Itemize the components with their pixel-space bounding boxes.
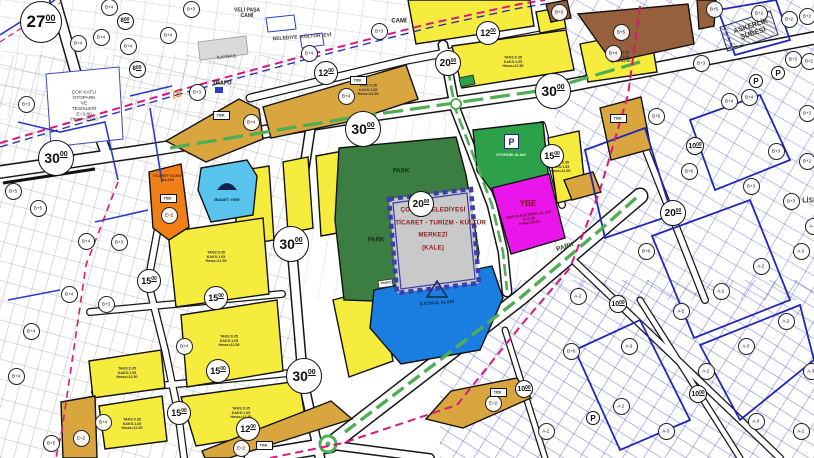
height-circle-label: B+3 <box>555 10 563 15</box>
road-width-circle: 2000 <box>660 200 686 226</box>
height-circle: B+3 <box>111 234 128 251</box>
height-circle: B+2 <box>799 153 814 170</box>
height-circle-label: A-2 <box>718 289 725 294</box>
road-width-decimals: 00 <box>367 122 375 129</box>
height-circle: B+4 <box>605 45 622 62</box>
height-circle: A-2 <box>778 313 795 330</box>
height-circle-label: B+2 <box>755 11 763 16</box>
height-circle-label: E=2 <box>77 436 85 441</box>
road-width-decimals: 00 <box>424 199 430 205</box>
height-circle-label: A-3 <box>808 369 814 374</box>
parking-circle: P <box>586 411 600 425</box>
otopark-p-letter: P <box>508 137 514 147</box>
road-width-decimals: 00 <box>220 366 226 372</box>
height-circle-label: B+3 <box>115 240 123 245</box>
height-circle-label: B+3 <box>772 149 780 154</box>
height-circle-label: B+3 <box>789 57 797 62</box>
road-width-decimals: 00 <box>124 17 130 23</box>
height-circle: A-2 <box>753 258 770 275</box>
height-circle: E=2 <box>161 207 178 224</box>
road-width-circle: 1000 <box>609 295 627 313</box>
height-circle: B+4 <box>70 35 87 52</box>
height-circle: B+4 <box>301 45 318 62</box>
height-circle-label: A-2 <box>575 294 582 299</box>
road-width-circle: 3000 <box>286 358 322 394</box>
height-circle-label: A-2 <box>798 429 805 434</box>
height-circle: A-2 <box>793 423 810 440</box>
road-width-decimals: 00 <box>45 13 55 23</box>
height-circle-label: A-3 <box>743 344 750 349</box>
road-width-value: 10 <box>517 386 525 393</box>
road-width-circle: 3000 <box>535 73 571 109</box>
height-circle: B+6 <box>681 163 698 180</box>
road-width-value: 15 <box>171 408 181 418</box>
height-circle: B+6 <box>563 343 580 360</box>
trafo-label-text: TRAFO <box>213 80 232 86</box>
road-width-decimals: 00 <box>181 408 187 414</box>
height-circle: A-2 <box>613 398 630 415</box>
height-circle-label: B+5 <box>47 441 55 446</box>
height-circle: B+4 <box>176 338 193 355</box>
ticaret-konut-label-text: TİCARET KONUT ALANI <box>152 174 183 183</box>
park-label-text: PARK <box>393 168 410 175</box>
tick-box-label: TİCK <box>354 78 362 82</box>
height-circle: A-2 <box>805 218 814 235</box>
height-circle-label: A-2 <box>810 224 814 229</box>
road-width-decimals: 00 <box>295 237 303 244</box>
road-width-decimals: 00 <box>619 300 625 306</box>
belediye-kultur-evi-label-text: BELEDİYE KÜLTÜR EVİ <box>272 32 331 42</box>
parking-circle: P <box>771 66 785 80</box>
road-width-value: 12 <box>240 424 250 434</box>
kale-title: ÇORUM BELEDİYESİ TİCARET - TURİZM - KÜLT… <box>373 204 493 254</box>
height-circle: A-2 <box>570 288 587 305</box>
height-circle-label: B+4 <box>65 292 73 297</box>
height-circle: A-2 <box>673 303 690 320</box>
height-circle-label: B+4 <box>74 41 82 46</box>
road-width-decimals: 00 <box>250 424 256 430</box>
kale-line: (KALE) <box>395 244 471 252</box>
block-note-text: TAKS:0.35 KAKS:1.05 Hmax=12.50 <box>122 418 143 430</box>
height-circle: B+5 <box>613 24 630 41</box>
height-circle: B+4 <box>741 89 758 106</box>
height-circle-label: A-2 <box>703 369 710 374</box>
road-width-decimals: 00 <box>328 68 334 74</box>
height-circle-label: B+4 <box>82 239 90 244</box>
height-circle: B+2 <box>781 11 798 28</box>
block-note-text: TAKS:0.35 KAKS:1.05 Hmax=12.50 <box>503 56 524 68</box>
road-width-decimals: 00 <box>218 293 224 299</box>
tick-box: TİCK <box>256 441 273 450</box>
park-label-text: PARK <box>555 241 574 253</box>
height-circle-label: B+4 <box>99 420 107 425</box>
road-width-value: 20 <box>413 199 424 210</box>
height-circle: B+4 <box>160 27 177 44</box>
height-circle: B+4 <box>61 286 78 303</box>
height-circle: A-2 <box>713 283 730 300</box>
road-width-value: 15 <box>141 276 151 286</box>
road-width-circle: 1200 <box>476 21 500 45</box>
road-width-value: 27 <box>27 12 46 32</box>
road-width-circle: 1200 <box>314 61 338 85</box>
height-circle: B+4 <box>95 414 112 431</box>
s-boundary-label-text: (S <box>173 90 182 100</box>
height-circle-label: B+2 <box>803 159 811 164</box>
road-width-circle: 1000 <box>515 380 533 398</box>
block-note-text: TAKS:0.35 KAKS:1.05 Hmax=12.50 <box>117 367 138 379</box>
road-width-decimals: 00 <box>699 390 705 396</box>
height-circle: B+3 <box>783 193 800 210</box>
tick-box-label: TİCK <box>614 116 622 120</box>
height-circle-label: B+4 <box>97 35 105 40</box>
road-width-circle: 1200 <box>236 417 260 441</box>
otopark-alani-label-text: OTOPARK ALANI <box>496 153 526 157</box>
road-width-value: 15 <box>544 151 554 161</box>
height-circle: A-2 <box>538 423 555 440</box>
height-circle-label: B+3 <box>747 184 755 189</box>
height-circle-label: A-2 <box>678 309 685 314</box>
height-circle-label: B+4 <box>305 51 313 56</box>
height-circle-label: A-2 <box>783 319 790 324</box>
height-circle: B+5 <box>30 200 47 217</box>
road-width-decimals: 00 <box>136 65 142 71</box>
road-width-value: 12 <box>480 28 490 38</box>
height-circle-label: B+6 <box>642 249 650 254</box>
height-circle: B+5 <box>5 183 22 200</box>
height-circle: B+3 <box>799 105 814 122</box>
veli-pasa-cami-label-text: VELİ PAŞA CAMİ <box>234 7 260 18</box>
block-note: TAKS:0.35 KAKS:1.05 Hmax=12.50 <box>229 341 287 376</box>
road-width-value: 30 <box>541 83 557 99</box>
height-circle-label: B+6 <box>567 349 575 354</box>
road-width-circle: 3000 <box>273 226 309 262</box>
height-circle: B+3 <box>743 178 760 195</box>
height-circle: B+3 <box>98 296 115 313</box>
height-circle-label: A-2 <box>618 404 625 409</box>
height-circle-label: B+3 <box>187 7 195 12</box>
road-width-value: 30 <box>351 121 367 137</box>
height-circle-label: B+4 <box>342 94 350 99</box>
height-circle-label: B+3 <box>22 102 30 107</box>
kale-line: MERKEZİ <box>395 231 471 239</box>
road-width-circle: 1000 <box>689 385 707 403</box>
cok-katli-otopark-label-text: ÇOK KATLI OTOPARK VE TESİSLERİ E=3.80 Hm… <box>70 90 97 122</box>
height-circle: B+4 <box>101 0 118 16</box>
parking-circle: P <box>749 74 763 88</box>
otopark-p-sign: P <box>504 134 519 149</box>
height-circle: A-3 <box>738 338 755 355</box>
height-circle: A-3 <box>793 243 810 260</box>
cami-label-text: CAMİ <box>391 18 406 25</box>
height-circle: B+3 <box>189 84 206 101</box>
ybe-label-text: YBE <box>520 200 536 209</box>
road-width-circle: 1500 <box>204 286 228 310</box>
height-circle: B+6 <box>638 243 655 260</box>
block-note: TAKS:0.35 KAKS:1.05 Hmax=12.50 <box>620 57 678 92</box>
lise-label-text: LİSE <box>802 197 814 205</box>
height-circle: B+5 <box>706 1 723 18</box>
height-circle-label: B+4 <box>745 95 753 100</box>
ilkokul-alani-label-text: İLKOKUL ALANI <box>419 299 454 306</box>
road-width-circle: 3000 <box>38 140 74 176</box>
road-width-circle: 3000 <box>345 111 381 147</box>
height-circle-label: A-3 <box>663 429 670 434</box>
height-circle-label: B+4 <box>105 5 113 10</box>
road-width-value: 10 <box>688 143 696 150</box>
road-width-value: 30 <box>292 368 308 384</box>
road-width-decimals: 00 <box>676 208 682 214</box>
height-circle-label: B+2 <box>785 17 793 22</box>
tick-box: TİCK <box>350 76 367 85</box>
height-circle: B+4 <box>721 93 738 110</box>
height-circle-label: A-3 <box>798 249 805 254</box>
road-width-decimals: 00 <box>525 385 531 391</box>
tick-box-label: TİCK <box>164 196 172 200</box>
height-circle-label: B+3 <box>697 61 705 66</box>
tick-box: TİCK <box>610 114 627 123</box>
height-circle: B+4 <box>243 114 260 131</box>
road-width-circle: 1500 <box>167 401 191 425</box>
height-circle-label: B+5 <box>34 206 42 211</box>
height-circle: B+3 <box>768 143 785 160</box>
height-circle: B+2 <box>801 53 814 70</box>
trafo2-label-text: TRAFO <box>380 281 391 286</box>
height-circle-label: B+4 <box>27 329 35 334</box>
road-width-circle: 800 <box>129 61 146 78</box>
block-note-text: TAKS:0.35 KAKS:1.05 Hmax=12.50 <box>358 84 379 96</box>
height-circle-label: B+3 <box>102 302 110 307</box>
road-width-decimals: 00 <box>554 151 560 157</box>
road-width-circle: 2000 <box>435 50 461 76</box>
ybe-detail-label-text: SOSYO-KÜLTÜREL ALANI E=1.00 Hmax=15.50 <box>506 210 552 228</box>
height-circle-label: B+4 <box>609 51 617 56</box>
road-width-value: 20 <box>665 208 676 219</box>
road-width-decimals: 00 <box>490 28 496 34</box>
height-circle: B+3 <box>785 51 802 68</box>
tick-box: TİCK <box>213 111 230 120</box>
height-circle-label: E=2 <box>489 401 497 406</box>
height-circle: E=2 <box>485 395 502 412</box>
height-circle-label: B+5 <box>9 189 17 194</box>
road-width-value: 15 <box>208 293 218 303</box>
height-circle-label: B+5 <box>617 30 625 35</box>
height-circle-label: B+3 <box>193 90 201 95</box>
height-circle: B+3 <box>18 96 35 113</box>
tick-box-label: TİCK <box>217 113 225 117</box>
height-circle-label: B+2 <box>805 59 813 64</box>
road-width-value: 12 <box>318 68 328 78</box>
kale-line: TİCARET - TURİZM - KÜLTÜR <box>395 219 471 227</box>
height-circle: A-2 <box>698 363 715 380</box>
height-circle: E=2 <box>233 440 250 457</box>
road-width-decimals: 00 <box>308 369 316 376</box>
road-width-circle: 2000 <box>408 191 434 217</box>
road-width-decimals: 00 <box>557 84 565 91</box>
block-note: TAKS:0.35 KAKS:1.05 Hmax=12.50 <box>560 167 618 202</box>
height-circle-label: B+4 <box>725 99 733 104</box>
height-circle: B+3 <box>551 4 568 21</box>
height-circle-label: B+4 <box>164 33 172 38</box>
height-circle: A-3 <box>748 413 765 430</box>
road-width-value: 10 <box>611 301 619 308</box>
height-circle-label: B+3 <box>375 29 383 34</box>
tick-box-label: TİCK <box>260 443 268 447</box>
height-circle: B+4 <box>23 323 40 340</box>
height-circle-label: A-3 <box>626 344 633 349</box>
road-width-value: 30 <box>44 150 60 166</box>
height-circle-label: B+6 <box>685 169 693 174</box>
height-circle-label: B+5 <box>652 114 660 119</box>
height-circle: A-3 <box>658 423 675 440</box>
zoning-plan-map: ÇORUM BELEDİYESİ TİCARET - TURİZM - KÜLT… <box>0 0 814 458</box>
road-width-decimals: 00 <box>696 142 702 148</box>
height-circle-label: B+4 <box>12 374 20 379</box>
road-width-circle: 800 <box>117 13 134 30</box>
ibadet-yeri-label-text: İBADET YERİ <box>214 198 239 202</box>
height-circle-label: B+2 <box>803 14 811 19</box>
road-width-value: 30 <box>279 236 295 252</box>
road-width-circle: 1000 <box>686 137 704 155</box>
height-circle: B+4 <box>120 38 137 55</box>
height-circle-label: A-3 <box>753 419 760 424</box>
height-circle-label: B+3 <box>803 111 811 116</box>
height-circle-label: B+4 <box>247 120 255 125</box>
block-note-text: TAKS:0.35 KAKS:1.05 Hmax=12.50 <box>219 335 240 347</box>
road-width-value: 15 <box>210 366 220 376</box>
height-circle: A-3 <box>621 338 638 355</box>
height-circle: B+2 <box>799 8 814 25</box>
tick-box: TİCK <box>160 194 177 203</box>
road-width-circle: 1500 <box>137 269 161 293</box>
height-circle: B+4 <box>8 368 25 385</box>
height-circle: B+5 <box>648 108 665 125</box>
tick-box: TİCK <box>490 388 507 397</box>
height-circle: B+3 <box>693 55 710 72</box>
block-note: TAKS:0.35 KAKS:1.05 Hmax=12.50 <box>132 424 190 458</box>
height-circle: B+5 <box>43 435 60 452</box>
ilkokul-label-text: İLKOKUL <box>217 53 237 60</box>
height-circle: B+4 <box>93 29 110 46</box>
height-circle: B+4 <box>338 88 355 105</box>
road-width-decimals: 00 <box>151 276 157 282</box>
height-circle-label: A-2 <box>543 429 550 434</box>
height-circle-label: B+5 <box>710 7 718 12</box>
height-circle-label: A-2 <box>758 264 765 269</box>
tick-box-label: TİCK <box>494 390 502 394</box>
road-width-decimals: 00 <box>60 151 68 158</box>
height-circle: A-3 <box>803 363 814 380</box>
road-width-value: 10 <box>691 391 699 398</box>
block-note-text: TAKS:0.35 KAKS:1.05 Hmax=12.50 <box>206 251 227 263</box>
height-circle-label: B+3 <box>787 199 795 204</box>
height-circle-label: E=2 <box>237 446 245 451</box>
height-circle: B+4 <box>78 233 95 250</box>
height-circle: E=2 <box>73 430 90 447</box>
road-width-circle: 1500 <box>540 144 564 168</box>
height-circle-label: B+4 <box>124 44 132 49</box>
road-width-circle: 2700 <box>20 1 62 43</box>
height-circle-label: E=2 <box>165 213 173 218</box>
road-width-decimals: 00 <box>451 58 457 64</box>
height-circle: B+3 <box>371 23 388 40</box>
block-note: TAKS:0.35 KAKS:1.05 Hmax=12.50 <box>216 257 274 292</box>
park-label-text: PARK <box>368 237 385 244</box>
height-circle-label: B+4 <box>180 344 188 349</box>
height-circle: B+3 <box>183 1 200 18</box>
road-width-value: 20 <box>440 58 451 69</box>
road-width-circle: 1500 <box>206 359 230 383</box>
